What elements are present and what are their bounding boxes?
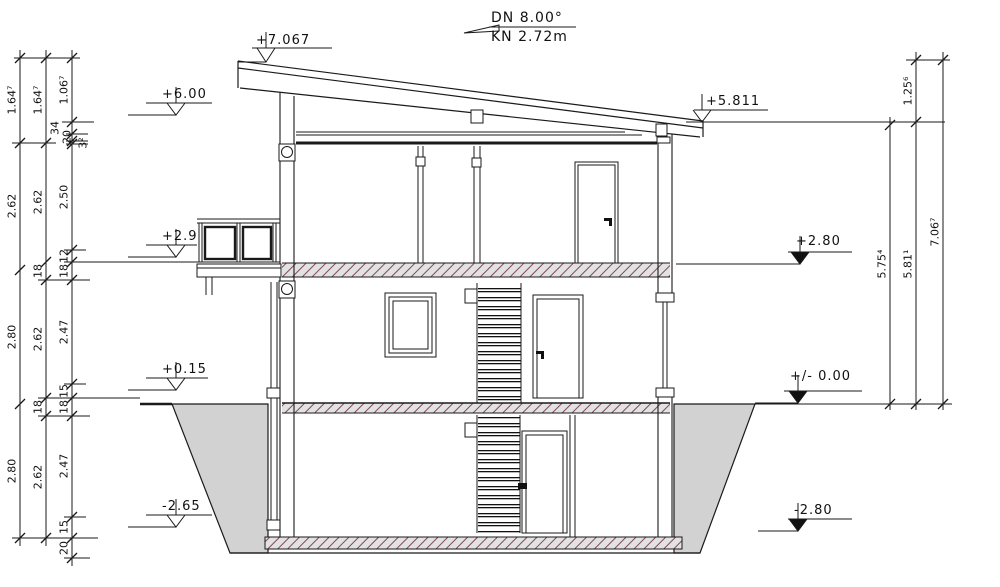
dimension-value: 1.64⁷ xyxy=(6,86,19,115)
eave-purlin-box xyxy=(656,124,667,136)
roof-pitch-dn: DN 8.00° xyxy=(491,10,563,26)
dimension-value: 7.06⁷ xyxy=(929,218,942,247)
downpipe xyxy=(267,282,280,530)
dimension-value: 2.47 xyxy=(58,454,71,479)
door-top-floor xyxy=(575,162,618,263)
roof-underside-line xyxy=(240,88,700,137)
slab-basement xyxy=(265,537,682,549)
level-value: +5.811 xyxy=(706,94,760,109)
roof-vent-box xyxy=(471,110,483,123)
stairs-ground-floor xyxy=(465,283,521,403)
doors xyxy=(518,162,618,533)
dimension-value: 2.47 xyxy=(58,320,71,345)
level-value: -2.65 xyxy=(162,499,201,514)
dimension-value: 15 xyxy=(58,520,71,534)
partition-header xyxy=(416,157,425,166)
level-value: -2.80 xyxy=(794,503,833,518)
dimension-value: 2.62 xyxy=(6,194,19,219)
drawing-canvas xyxy=(0,0,1000,587)
stairs-basement xyxy=(465,415,520,533)
eave-purlin-box xyxy=(657,137,670,143)
dimension-value: 3² xyxy=(77,137,90,148)
level-value: +/- 0.00 xyxy=(790,369,851,384)
partition-header xyxy=(472,158,481,167)
stair-landing-edge xyxy=(465,289,477,303)
dimension-value: 2.50 xyxy=(58,185,71,210)
window-sill xyxy=(656,293,674,302)
stair-landing-edge xyxy=(465,423,477,437)
floor-slabs xyxy=(265,263,682,549)
level-triangle-filled xyxy=(789,519,807,531)
window-ground-floor xyxy=(385,293,436,357)
balcony-slab xyxy=(197,264,281,277)
dimension-value: 1.06⁷ xyxy=(58,76,71,105)
window-sill xyxy=(656,388,674,397)
building-section-drawing: DN 8.00° KN 2.72m 1.64⁷2.622.802.801.64⁷… xyxy=(0,0,1000,587)
level-triangle-open xyxy=(167,515,185,527)
dimension-value: 2.80 xyxy=(6,459,19,484)
slab-upper xyxy=(282,263,670,277)
dimension-value: 5.75⁴ xyxy=(876,250,889,279)
level-triangle-filled xyxy=(789,391,807,403)
dimension-value: 18 xyxy=(32,400,45,414)
level-triangle-open xyxy=(167,378,185,390)
level-value: +2.9 xyxy=(162,229,198,244)
level-value: +2.80 xyxy=(796,234,841,249)
dimension-value: 1.25⁶ xyxy=(902,77,915,106)
level-triangle-open xyxy=(167,103,185,115)
dimension-value: 18 xyxy=(58,400,71,414)
level-triangle-open xyxy=(257,48,275,62)
dimension-value: 2.80 xyxy=(6,325,19,350)
dimension-value: 1.64⁷ xyxy=(32,86,45,115)
dimension-value: 20 xyxy=(61,130,74,144)
dimension-value: 18 xyxy=(32,264,45,278)
door-handle xyxy=(609,218,612,226)
railing-panel xyxy=(243,227,271,259)
dimension-value: 18 xyxy=(58,264,71,278)
dimension-value: 15 xyxy=(58,384,71,398)
window-right-wall-section xyxy=(656,293,674,397)
railing-panel xyxy=(205,227,235,259)
dimension-value: 20 xyxy=(58,541,71,555)
dimension-value: 12 xyxy=(58,249,71,263)
level-value: +0.15 xyxy=(162,362,207,377)
downpipe-shoe-upper xyxy=(267,388,280,398)
dimension-value: 2.62 xyxy=(32,465,45,490)
earth-right xyxy=(674,404,755,553)
downpipe-shoe-lower xyxy=(267,520,280,530)
dimension-value: 5.81¹ xyxy=(902,250,915,279)
level-value: +7.067 xyxy=(256,33,310,48)
door-basement xyxy=(518,431,567,533)
dimension-value: 2.62 xyxy=(32,327,45,352)
door-handle xyxy=(518,483,527,489)
level-value: +6.00 xyxy=(162,87,207,102)
door-ground-floor xyxy=(533,295,583,398)
earth-left xyxy=(172,404,268,553)
windows xyxy=(385,293,674,397)
level-triangle-open xyxy=(167,245,185,257)
roof-pitch-kn: KN 2.72m xyxy=(491,29,568,45)
slab-ground xyxy=(282,403,670,413)
level-triangle-filled xyxy=(791,252,809,264)
roof xyxy=(238,61,703,143)
door-handle xyxy=(541,351,544,359)
dimension-value: 2.62 xyxy=(32,190,45,215)
